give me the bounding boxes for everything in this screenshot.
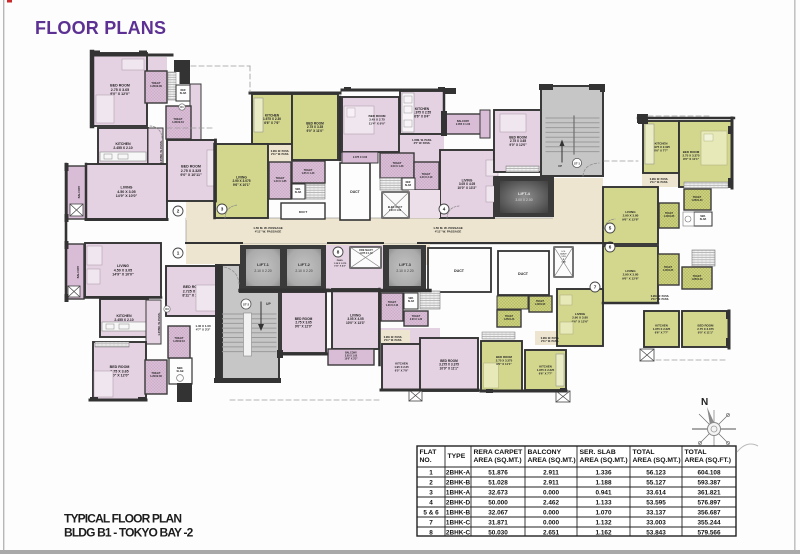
svg-text:D3: D3 xyxy=(165,307,169,311)
svg-text:BED ROOM3.275 X 3.37510'9" X 1: BED ROOM3.275 X 3.37510'9" X 11'1" xyxy=(439,359,459,371)
svg-text:RERA CARPET: RERA CARPET xyxy=(474,449,524,456)
svg-text:31.871: 31.871 xyxy=(488,519,508,526)
svg-text:55.127: 55.127 xyxy=(646,479,666,486)
svg-text:ST-2: ST-2 xyxy=(243,303,250,307)
svg-text:NER.SLAB: NER.SLAB xyxy=(176,366,183,373)
svg-text:NERSLAB: NERSLAB xyxy=(180,89,187,95)
svg-text:576.897: 576.897 xyxy=(697,499,721,506)
svg-text:2.10 X 2.20: 2.10 X 2.20 xyxy=(396,269,413,273)
svg-text:SER.SLAB: SER.SLAB xyxy=(408,298,415,303)
svg-text:DUCT: DUCT xyxy=(350,190,360,194)
svg-text:BED ROOM2.75 X 3.659'0" X 12'0: BED ROOM2.75 X 3.659'0" X 12'0" xyxy=(509,135,527,147)
svg-text:1: 1 xyxy=(177,251,180,256)
svg-text:51.876: 51.876 xyxy=(488,469,508,476)
svg-text:TOTAL: TOTAL xyxy=(685,449,707,456)
svg-text:KITCHEN2.455 X 2.10: KITCHEN2.455 X 2.10 xyxy=(114,314,133,322)
svg-text:0.9M. W. PASS.2'11" W. PASS.: 0.9M. W. PASS.2'11" W. PASS. xyxy=(384,335,403,342)
svg-text:1.188: 1.188 xyxy=(596,479,612,486)
svg-text:BALCONY2.055 X 1.00: BALCONY2.055 X 1.00 xyxy=(456,120,471,126)
svg-text:0.9M. W. PASS.2'11" W. PASS.: 0.9M. W. PASS.2'11" W. PASS. xyxy=(271,149,290,156)
svg-text:8: 8 xyxy=(429,529,433,536)
svg-text:FLOOR PLANS: FLOOR PLANS xyxy=(35,18,166,38)
svg-text:5 & 6: 5 & 6 xyxy=(423,509,439,516)
svg-text:2: 2 xyxy=(177,209,180,214)
svg-text:2BHK-D: 2BHK-D xyxy=(446,499,471,506)
svg-text:AREA (SQ.MT.): AREA (SQ.MT.) xyxy=(528,457,576,464)
svg-text:1.055M. W. PASS.: 1.055M. W. PASS. xyxy=(157,312,161,335)
svg-text:3.00 X 2.00: 3.00 X 2.00 xyxy=(515,198,532,202)
svg-text:56.123: 56.123 xyxy=(646,469,666,476)
svg-text:593.387: 593.387 xyxy=(697,479,721,486)
svg-text:3: 3 xyxy=(221,207,224,212)
svg-text:32.067: 32.067 xyxy=(488,509,508,516)
svg-text:BALCONY: BALCONY xyxy=(528,449,562,456)
svg-text:50.000: 50.000 xyxy=(488,499,508,506)
svg-text:579.566: 579.566 xyxy=(697,529,721,536)
svg-text:BALCONY: BALCONY xyxy=(78,185,81,198)
svg-text:LIFT-4: LIFT-4 xyxy=(518,191,531,196)
svg-text:LIFT-3: LIFT-3 xyxy=(399,262,412,267)
svg-text:FIRE SHAFT1.875 X 1.10: FIRE SHAFT1.875 X 1.10 xyxy=(359,249,373,255)
svg-text:2BHK-C: 2BHK-C xyxy=(446,529,471,536)
svg-text:AREA (SQ.MT.): AREA (SQ.MT.) xyxy=(580,457,628,464)
svg-text:KITCHEN1.95 X 2.356'5" X 7'9": KITCHEN1.95 X 2.356'5" X 7'9" xyxy=(394,362,409,373)
svg-text:2.911: 2.911 xyxy=(543,469,559,476)
svg-text:DUCT: DUCT xyxy=(518,272,529,276)
svg-text:3: 3 xyxy=(429,489,433,496)
svg-text:FLAT: FLAT xyxy=(420,449,438,456)
svg-text:2.10 X 2.20: 2.10 X 2.20 xyxy=(295,269,312,273)
svg-text:1.40 X 1.004'7" X 3'3": 1.40 X 1.004'7" X 3'3" xyxy=(195,324,211,332)
svg-text:DUCT: DUCT xyxy=(454,269,465,273)
svg-text:33.003: 33.003 xyxy=(646,519,666,526)
svg-text:1.070: 1.070 xyxy=(596,509,612,516)
svg-text:53.843: 53.843 xyxy=(646,529,666,536)
svg-text:ST-1: ST-1 xyxy=(574,161,580,165)
svg-text:AREA (SQ.MT.): AREA (SQ.MT.) xyxy=(474,457,522,464)
svg-text:5: 5 xyxy=(609,226,612,231)
svg-text:SER. SLAB: SER. SLAB xyxy=(580,449,616,456)
svg-text:2BHK-A: 2BHK-A xyxy=(446,469,471,476)
svg-text:1.50 M. W. PASSAGE4'11" W. PAS: 1.50 M. W. PASSAGE4'11" W. PASSAGE xyxy=(253,226,283,234)
svg-text:TOTAL: TOTAL xyxy=(633,449,655,456)
svg-text:BED ROOM2.75 X 3.659'0" X 12'0: BED ROOM2.75 X 3.659'0" X 12'0" xyxy=(295,317,313,329)
svg-text:2.10 X 2.20: 2.10 X 2.20 xyxy=(254,269,271,273)
svg-text:BED ROOM2.75 X 3.359'0" X 11'0: BED ROOM2.75 X 3.359'0" X 11'0" xyxy=(306,121,324,133)
svg-text:BED ROOM2.75 X 3.3759'0" X 11': BED ROOM2.75 X 3.3759'0" X 11'1" xyxy=(496,355,513,366)
svg-text:7: 7 xyxy=(594,285,597,290)
svg-text:0.000: 0.000 xyxy=(543,489,559,496)
svg-text:BED ROOM2.75 X 3.659'0" X 12'0: BED ROOM2.75 X 3.659'0" X 12'0" xyxy=(110,84,130,96)
svg-text:KITCHEN1.975 X 2.306'6" X 7'6": KITCHEN1.975 X 2.306'6" X 7'6" xyxy=(263,113,281,125)
svg-text:0.000: 0.000 xyxy=(543,509,559,516)
svg-text:2BHK-B: 2BHK-B xyxy=(446,479,471,486)
svg-text:1BHK-B: 1BHK-B xyxy=(446,509,471,516)
svg-text:1.162: 1.162 xyxy=(596,529,612,536)
svg-text:1.055M. W. PASS.: 1.055M. W. PASS. xyxy=(159,140,163,163)
svg-text:33.614: 33.614 xyxy=(646,489,666,496)
svg-text:LIFT-2: LIFT-2 xyxy=(298,262,311,267)
svg-text:33.137: 33.137 xyxy=(646,509,666,516)
svg-text:AREA (SQ.FT.): AREA (SQ.FT.) xyxy=(685,457,732,464)
svg-text:NO.: NO. xyxy=(420,457,432,464)
svg-text:4: 4 xyxy=(429,499,433,506)
svg-text:0.000: 0.000 xyxy=(543,519,559,526)
svg-text:BLDG B1 - TOKYO BAY -2: BLDG B1 - TOKYO BAY -2 xyxy=(64,526,194,540)
svg-text:AREA (SQ.MT.): AREA (SQ.MT.) xyxy=(633,457,681,464)
svg-text:32.673: 32.673 xyxy=(488,489,508,496)
svg-text:KITCHEN1.975 X 2.556'6" X 8'4": KITCHEN1.975 X 2.556'6" X 8'4" xyxy=(413,107,431,119)
svg-text:2.075 X 0.60: 2.075 X 0.60 xyxy=(353,156,368,159)
svg-text:6: 6 xyxy=(609,245,612,250)
svg-text:BED ROOM2.75 X 3.3259'0" X 10': BED ROOM2.75 X 3.3259'0" X 10'11" xyxy=(180,165,202,177)
svg-text:0.9M. W. PASS.2'11" W. PASS.: 0.9M. W. PASS.2'11" W. PASS. xyxy=(541,336,560,343)
svg-text:2.651: 2.651 xyxy=(543,529,559,536)
svg-text:604.108: 604.108 xyxy=(697,469,721,476)
svg-text:LIFT-1: LIFT-1 xyxy=(257,262,270,267)
svg-text:1BHK-C: 1BHK-C xyxy=(446,519,471,526)
svg-text:1.50 M. W. PASSAGE4'11" W. PAS: 1.50 M. W. PASSAGE4'11" W. PASSAGE xyxy=(433,226,463,234)
svg-text:53.595: 53.595 xyxy=(646,499,666,506)
svg-text:0.9M. W. PASS.2'11" W. PASS.: 0.9M. W. PASS.2'11" W. PASS. xyxy=(651,294,670,301)
svg-text:2.462: 2.462 xyxy=(543,499,559,506)
svg-text:2.911: 2.911 xyxy=(543,479,559,486)
svg-text:KITCHEN2.455 X 2.10: KITCHEN2.455 X 2.10 xyxy=(113,142,132,150)
svg-text:ELEC. DUCT1.00 X 1.00: ELEC. DUCT1.00 X 1.00 xyxy=(388,206,403,212)
svg-text:UP: UP xyxy=(266,302,271,306)
svg-text:0.9M. W. PASS.2'11" W. PASS.: 0.9M. W. PASS.2'11" W. PASS. xyxy=(650,177,669,184)
svg-text:D1: D1 xyxy=(180,105,184,109)
svg-text:50.030: 50.030 xyxy=(488,529,508,536)
svg-text:UP: UP xyxy=(558,164,562,168)
svg-text:7: 7 xyxy=(429,519,433,526)
svg-text:N: N xyxy=(701,397,708,408)
svg-text:355.244: 355.244 xyxy=(697,519,721,526)
svg-text:1.336: 1.336 xyxy=(596,469,612,476)
svg-text:1BHK-A: 1BHK-A xyxy=(446,489,471,496)
svg-text:356.687: 356.687 xyxy=(697,509,721,516)
svg-text:SER.SLAB: SER.SLAB xyxy=(700,215,707,221)
svg-text:TYPICAL FLOOR PLAN: TYPICAL FLOOR PLAN xyxy=(64,512,181,526)
svg-text:BALCONY3.05 X 1.0010'0" X 3'3": BALCONY3.05 X 1.0010'0" X 3'3" xyxy=(345,352,358,361)
svg-text:1.132: 1.132 xyxy=(596,519,612,526)
svg-text:4: 4 xyxy=(443,207,446,212)
svg-text:8: 8 xyxy=(337,250,340,255)
svg-text:DUCT: DUCT xyxy=(299,210,307,214)
svg-text:361.821: 361.821 xyxy=(697,489,721,496)
svg-text:BED ROOM3.45 X 2.7511'4" X 9'0: BED ROOM3.45 X 2.7511'4" X 9'0" xyxy=(368,114,385,125)
svg-text:BALCONY: BALCONY xyxy=(77,265,80,278)
svg-text:BED ROOM2.75 X 3.3759'0" X 11': BED ROOM2.75 X 3.3759'0" X 11'1" xyxy=(697,324,714,335)
svg-text:1.05M. W. PASS.3'5" W. PASS.: 1.05M. W. PASS.3'5" W. PASS. xyxy=(412,138,432,145)
svg-text:2: 2 xyxy=(429,479,433,486)
svg-text:SER.SLAB: SER.SLAB xyxy=(295,188,302,194)
svg-text:1.133: 1.133 xyxy=(596,499,612,506)
svg-text:0.941: 0.941 xyxy=(596,489,612,496)
svg-text:1: 1 xyxy=(429,469,433,476)
svg-text:51.028: 51.028 xyxy=(488,479,508,486)
svg-text:BED ROOM2.75 X 3.3759'0" X 11': BED ROOM2.75 X 3.3759'0" X 11'1" xyxy=(682,150,699,161)
svg-text:TYPE: TYPE xyxy=(448,453,466,460)
